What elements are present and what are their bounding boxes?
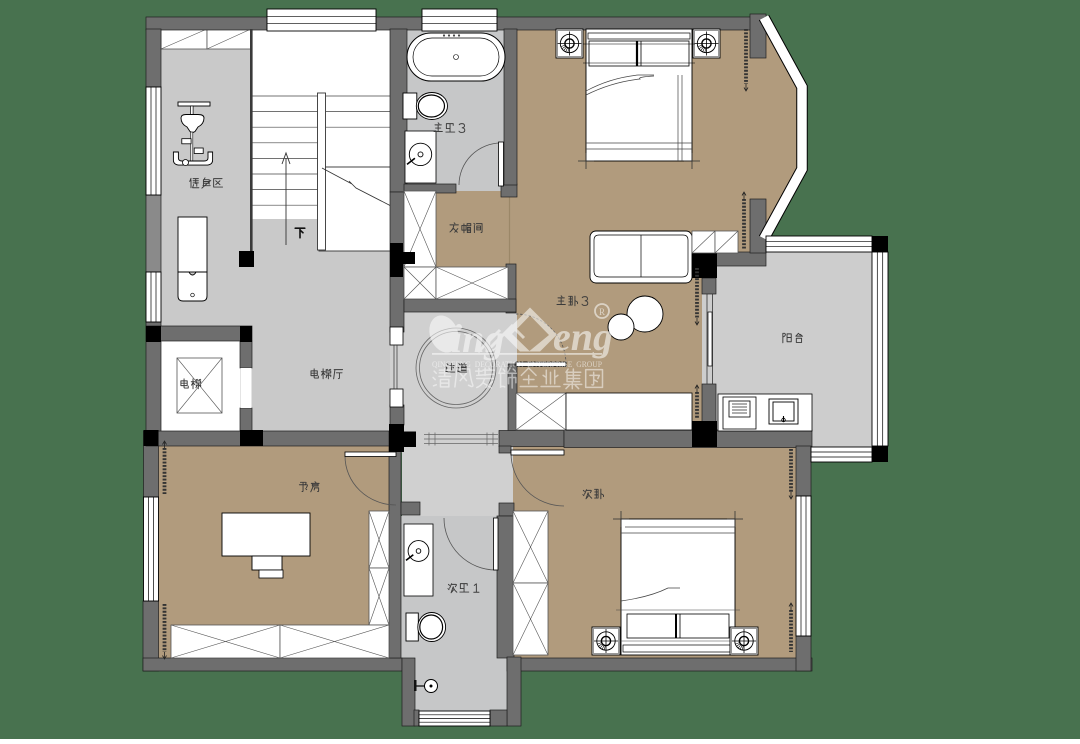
svg-text:eng: eng [553, 314, 613, 359]
svg-text:R: R [599, 307, 605, 317]
svg-text:QINGFENG DECORATION ENTERPRI: QINGFENG DECORATION ENTERPRISE GROUP [432, 360, 603, 369]
